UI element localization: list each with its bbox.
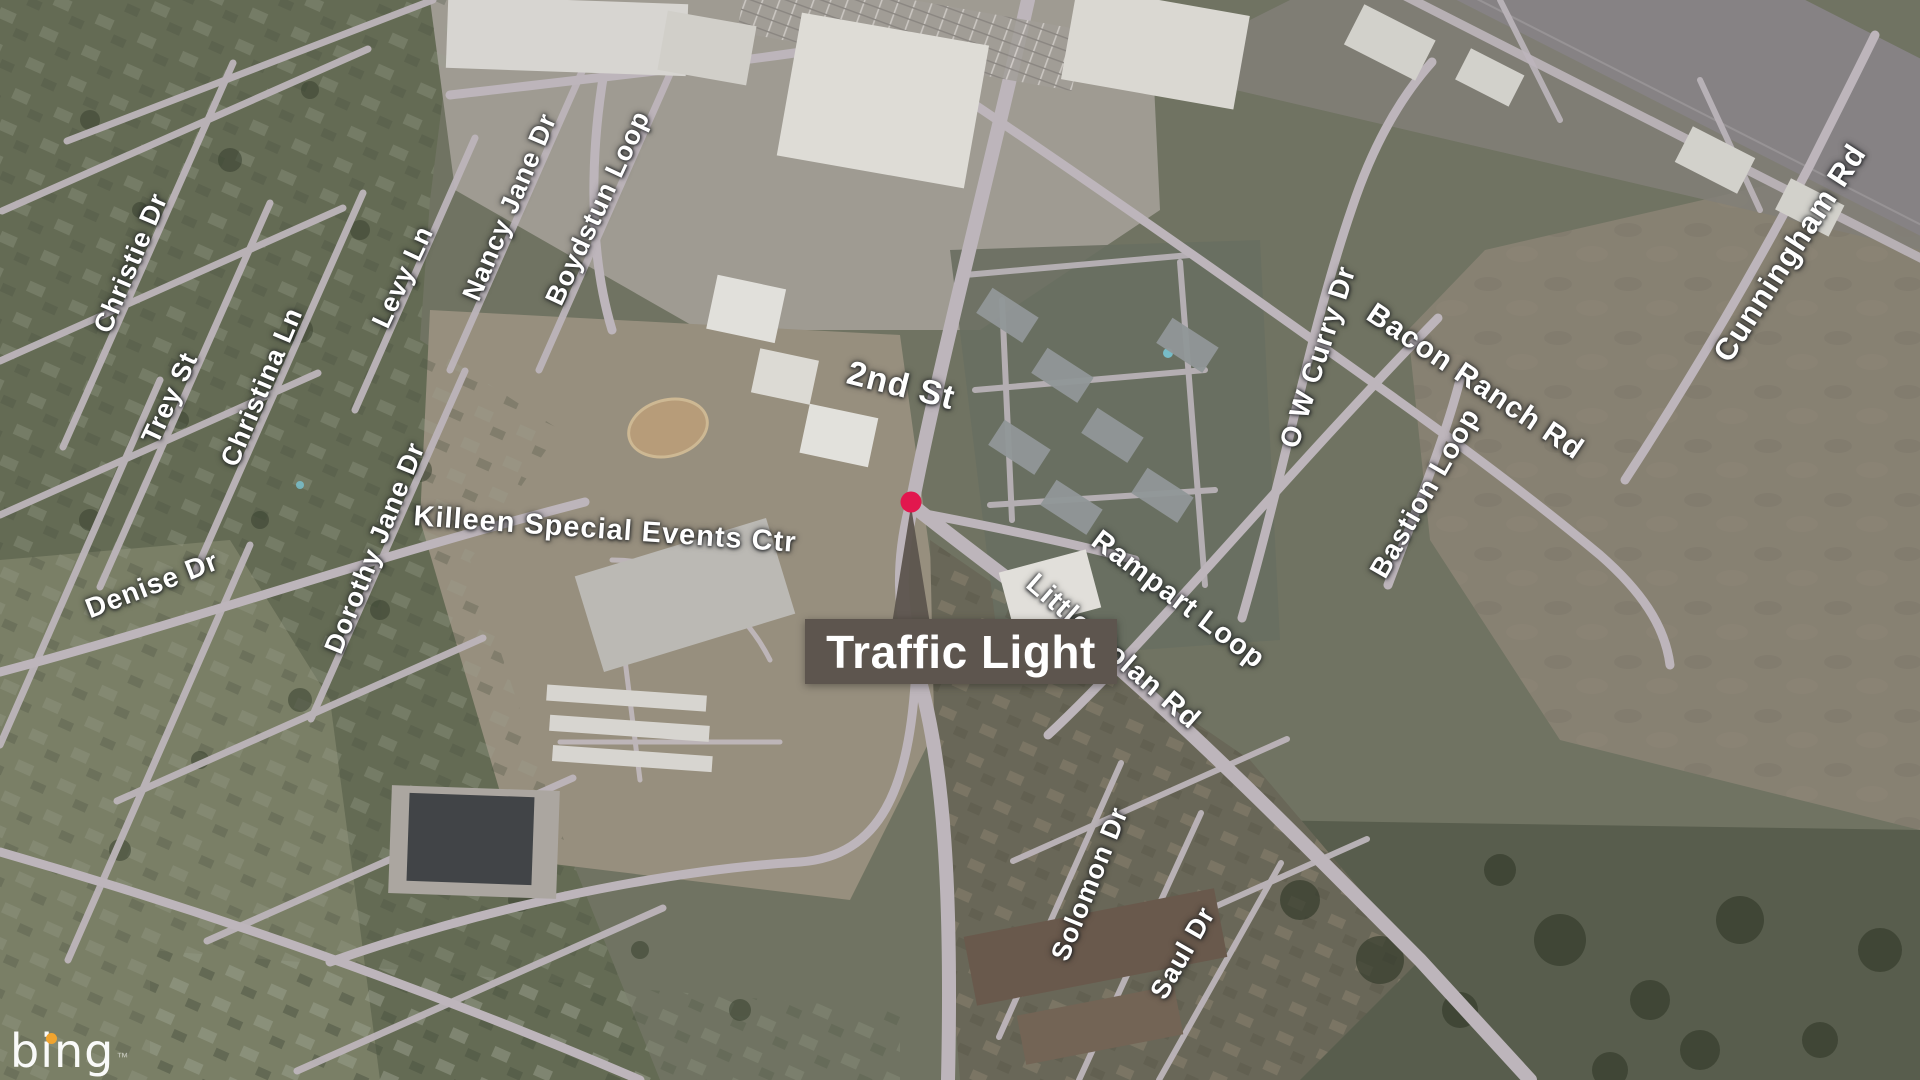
bing-trademark: ™ [116,1050,128,1064]
color-grade-overlay [0,0,1920,1080]
satellite-map [0,0,1920,1080]
bing-logo: bing™ [10,1024,128,1078]
news-map-graphic: Christie Dr Trey St Christina Ln Levy Ln… [0,0,1920,1080]
callout-box: Traffic Light [805,619,1117,684]
bing-logo-text: bing [10,1024,114,1078]
callout-label: Traffic Light [826,625,1096,679]
bing-logo-dot-icon [46,1033,57,1044]
